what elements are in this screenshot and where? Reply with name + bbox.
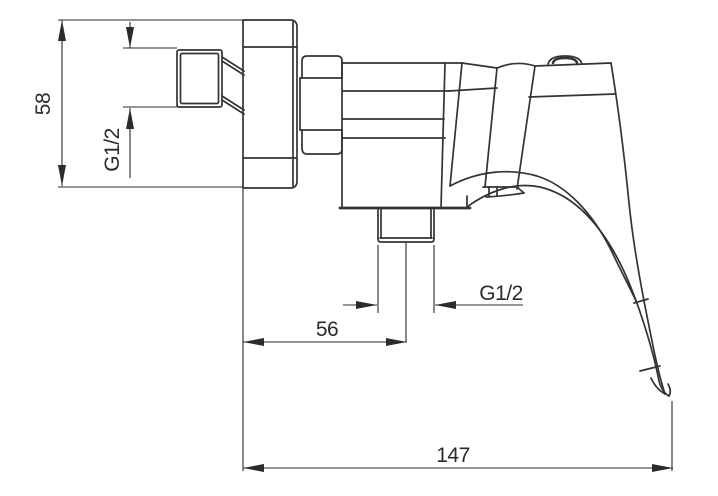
fixture-outline [177,20,670,396]
arrowhead-down [58,165,66,186]
arrowhead-left [435,301,456,309]
outlet-port [378,208,434,242]
arrowhead-right [386,338,407,346]
handle-lever [450,63,670,396]
handle-hub [517,63,615,189]
handle-skirt [483,63,535,197]
arrowhead-left [243,464,264,472]
dimension-inlet-thread [123,22,177,178]
arrowhead-right [652,464,673,472]
arrowhead-up [58,20,66,41]
arrowhead-up [126,108,134,129]
valve-body [340,62,497,208]
arrowhead-right [356,301,377,309]
technical-drawing-page: 58 G1/2 G1/2 56 147 [0,0,718,496]
technical-drawing-canvas: 58 G1/2 G1/2 56 147 [0,0,718,496]
label-height: 58 [32,93,55,115]
label-inlet-thread: G1/2 [101,128,124,172]
label-overall-length: 147 [436,444,470,467]
mounting-nut [300,56,342,154]
handle-cap-dome [548,56,582,64]
wall-plate [243,20,297,188]
arrowhead-left [243,338,264,346]
thread-hatching [222,57,244,114]
arrowhead-down [126,27,134,48]
label-outlet-offset: 56 [316,318,338,341]
inlet-connector [177,50,222,107]
dimension-annotations: 58 G1/2 G1/2 56 147 [32,20,673,472]
label-outlet-thread: G1/2 [479,282,523,305]
